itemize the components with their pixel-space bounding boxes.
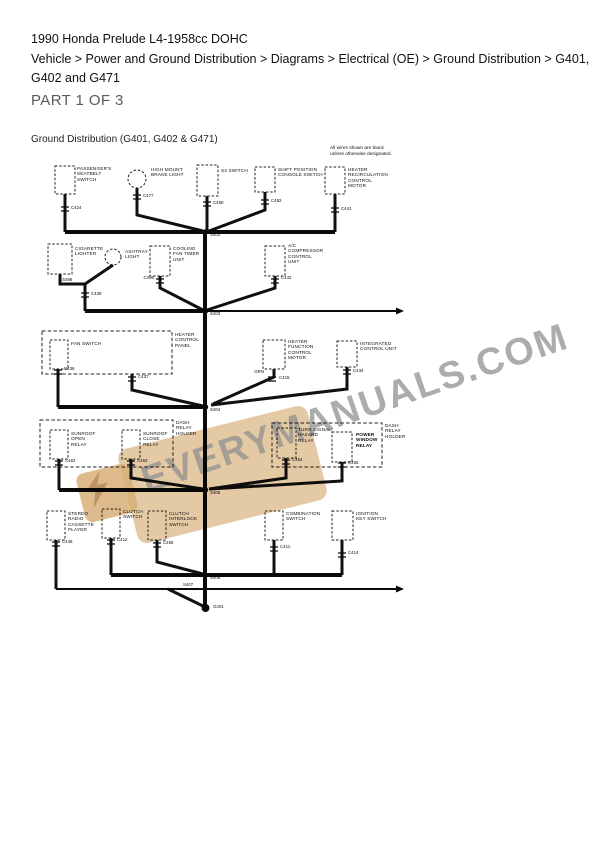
splice-label-s406: S406	[210, 576, 220, 580]
label-cigarette-lighter: CIGARETTE LIGHTER	[75, 246, 103, 257]
box-heater-function-control-motor	[263, 340, 285, 369]
ground-bus	[58, 232, 342, 607]
box-ac-compressor-control-unit	[265, 246, 285, 276]
arrow-right-s407	[396, 586, 404, 593]
label-clutch-switch: CLUTCH SWITCH	[123, 509, 143, 520]
connector-label-c442: C442	[281, 276, 292, 280]
connector-label-c411: C411	[280, 545, 290, 549]
label-heater-function-control-motor: HEATER FUNCTION CONTROL MOTOR	[288, 339, 313, 361]
connector-label-c455: C455	[163, 541, 174, 545]
connector-label-c462: C462	[65, 459, 76, 463]
connector-label-c454: C454	[292, 458, 303, 462]
continuation-lines	[56, 311, 396, 589]
splice-label-s403: S403	[210, 312, 220, 316]
label-ac-compressor-control-unit: A/C COMPRESSOR CONTROL UNIT	[288, 243, 323, 265]
label-fan-switch: FAN SWITCH	[71, 341, 101, 346]
box-clutch-interlock-switch	[148, 511, 166, 540]
connector-label-c437: C437	[138, 375, 149, 379]
connector-label-c412: C412	[117, 538, 128, 542]
junction-s403	[203, 308, 208, 313]
box-stereo-radio-cassette-player	[47, 511, 65, 540]
connector-label-c424: C424	[71, 206, 82, 210]
label-ignition-key-switch: IGNITION KEY SWITCH	[356, 511, 387, 522]
box-sunroof-open-relay	[50, 430, 68, 459]
ground-label-g401: G401	[213, 605, 224, 609]
box-fan-switch	[50, 340, 68, 369]
label-ashtray-light: ASHTRAY LIGHT	[125, 249, 148, 260]
label-stereo-radio-cassette-player: STEREO RADIO CASSETTE PLAYER	[68, 511, 94, 533]
label-heater-recirculation-control-motor: HEATER RECIRCULATION CONTROL MOTOR	[348, 167, 388, 189]
wire-color-label-grn: GRN	[248, 370, 264, 374]
splice-label-s404: S404	[210, 408, 220, 412]
box-heater-control-panel	[42, 331, 172, 374]
box-integrated-control-unit	[337, 341, 357, 367]
label-integrated-control-unit: INTEGRATED CONTROL UNIT	[360, 341, 397, 352]
connector-label-c496: C496	[132, 276, 154, 280]
connector-label-c480: C480	[213, 201, 224, 205]
junction-s404	[203, 404, 208, 409]
connector-label-c415: C415	[279, 376, 290, 380]
box-high-mount-brake-light	[128, 170, 146, 188]
box-power-window-relay	[332, 432, 352, 462]
label-passengers-seatbelt-switch: PASSENGER'S SEATBELT SWITCH	[77, 166, 112, 182]
label-high-mount-brake-light: HIGH MOUNT BRAKE LIGHT	[151, 167, 184, 178]
box-ashtray-light	[105, 249, 121, 265]
connector-label-c438: C438	[91, 292, 102, 296]
box-shift-position-console-switch	[255, 167, 275, 192]
box-cooling-fan-timer-unit	[150, 246, 170, 276]
label-sunroof-open-relay: SUNROOF OPEN RELAY	[71, 431, 96, 447]
label-heater-control-panel: HEATER CONTROL PANEL	[175, 332, 199, 348]
junction-s402	[203, 229, 208, 234]
connector-label-c414: C414	[348, 551, 359, 555]
box-s4-switch	[197, 165, 218, 196]
box-passengers-seatbelt-switch	[55, 166, 75, 194]
splice-label-s402: S402	[210, 233, 220, 237]
label-s4-switch: S4 SWITCH	[221, 168, 248, 173]
manual-page: 1990 Honda Prelude L4-1958cc DOHC Vehicl…	[0, 0, 612, 866]
label-shift-position-console-switch: SHIFT POSITION CONSOLE SWITCH	[278, 167, 323, 178]
connector-label-c436: C436	[64, 367, 75, 371]
junction-s405	[203, 487, 208, 492]
box-sunroof-close-relay	[122, 430, 140, 459]
splice-label-s405: S405	[210, 491, 220, 495]
box-cigarette-lighter	[48, 244, 72, 274]
connector-label-c477: C477	[143, 194, 154, 198]
label-cooling-fan-timer-unit: COOLING FAN TIMER UNIT	[173, 246, 199, 262]
label-turn-signal-hazard-relay: TURN SIGNAL/ HAZARD RELAY	[298, 427, 333, 443]
connector-label-c463: C463	[137, 459, 148, 463]
component-boxes	[40, 165, 382, 540]
connector-label-c448: C448	[62, 540, 73, 544]
box-clutch-switch	[102, 509, 120, 538]
ground-point-g401	[202, 604, 210, 612]
label-sunroof-close-relay: SUNROOF CLOSE RELAY	[143, 431, 168, 447]
box-ignition-key-switch	[332, 511, 353, 540]
box-combination-switch	[265, 511, 283, 540]
connector-label-c456: C456	[348, 461, 359, 465]
connector-label-c482: C482	[271, 199, 282, 203]
label-clutch-interlock-switch: CLUTCH INTERLOCK SWITCH	[169, 511, 197, 527]
splice-label-s407: S407	[183, 583, 193, 587]
connector-label-c434: C434	[353, 369, 364, 373]
label-combination-switch: COMBINATION SWITCH	[286, 511, 320, 522]
connector-label-c441: C441	[341, 207, 352, 211]
junction-s406	[203, 572, 208, 577]
label-dash-relay-holder-right: DASH RELAY HOLDER	[385, 423, 405, 439]
arrow-right-s403	[396, 308, 404, 315]
box-heater-recirculation-control-motor	[325, 167, 345, 194]
label-dash-relay-holder-left: DASH RELAY HOLDER	[176, 420, 196, 436]
label-power-window-relay: POWER WINDOW RELAY	[356, 432, 377, 448]
splice-label-s498: S498	[62, 278, 72, 282]
box-turn-signal-hazard-relay	[277, 428, 296, 458]
